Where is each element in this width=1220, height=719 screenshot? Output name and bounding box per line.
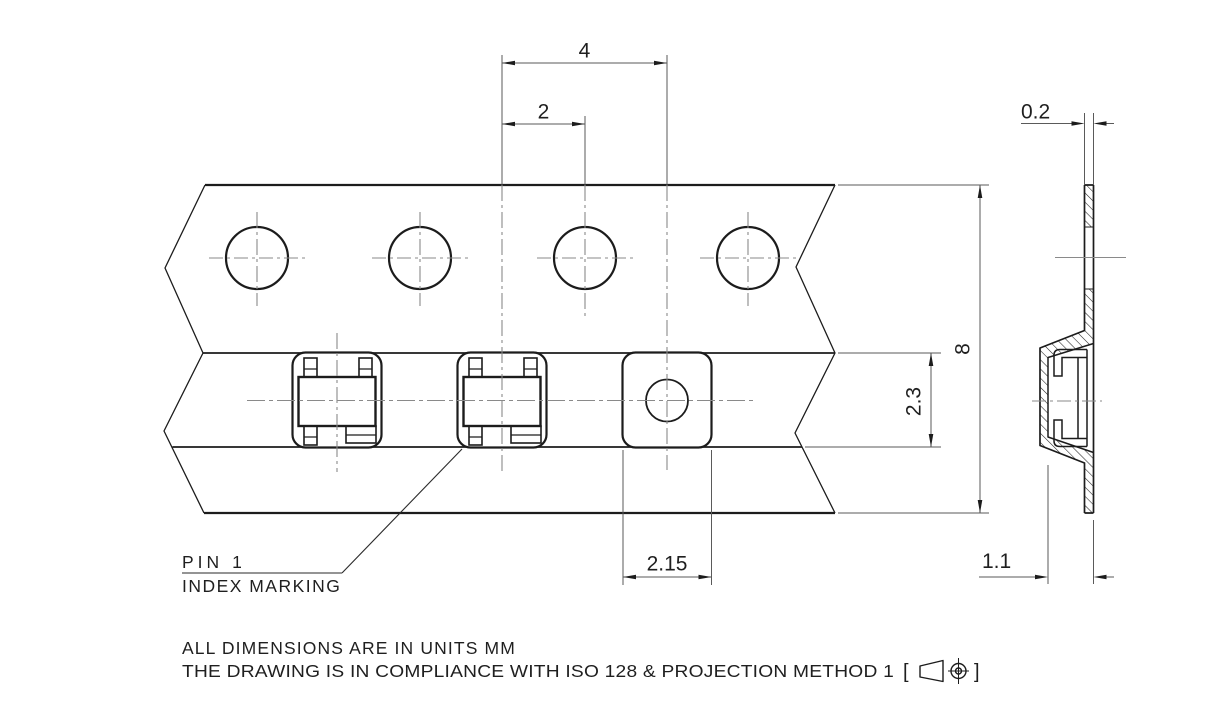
component-1-pin-top-left <box>304 358 317 377</box>
first-angle-projection-symbol-icon <box>920 658 969 684</box>
arrowhead-right <box>699 575 712 580</box>
component-1-pin-top-right <box>359 358 372 377</box>
arrowhead-top <box>978 185 983 198</box>
dimension-pocket-width: 2.15 <box>623 450 712 585</box>
arrowhead-bottom <box>929 434 934 447</box>
arrowhead-left <box>502 122 515 127</box>
dim-value-pocket-width: 2.15 <box>647 553 688 576</box>
arrowhead-left <box>1035 575 1048 580</box>
arrowhead-left <box>623 575 636 580</box>
component-2-pin-top-left <box>469 358 482 377</box>
arrowhead-bottom <box>978 500 983 513</box>
tape-side-section-view: 0.2 1.1 <box>979 101 1126 585</box>
compliance-note: THE DRAWING IS IN COMPLIANCE WITH ISO 12… <box>182 661 894 681</box>
component-1-pin-bottom-left <box>304 426 317 445</box>
bracket-open: [ <box>903 661 909 683</box>
drawing-notes: ALL DIMENSIONS ARE IN UNITS MM THE DRAWI… <box>182 638 980 684</box>
arrowhead-left <box>1072 121 1085 126</box>
left-break-line <box>164 185 205 513</box>
dimension-pocket-pitch: 4 <box>502 40 667 66</box>
dim-value-pocket-depth: 1.1 <box>982 550 1011 573</box>
projection-crosshair <box>948 658 969 684</box>
component-section-profile <box>1054 350 1087 447</box>
arrowhead-right <box>1094 575 1107 580</box>
arrowhead-right <box>654 61 667 66</box>
drawing-canvas: 4 2 2.15 8 <box>0 0 1220 719</box>
component-2-pin-bottom-left <box>469 426 482 445</box>
component-2-pin-top-right <box>524 358 537 377</box>
dimension-tape-width: 8 <box>838 185 989 513</box>
projection-cone-icon <box>920 661 943 682</box>
dim-value-tape-width: 8 <box>952 343 975 355</box>
units-note: ALL DIMENSIONS ARE IN UNITS MM <box>182 638 515 658</box>
extension-lines <box>1085 113 1094 185</box>
bracket-close: ] <box>974 661 980 683</box>
arrowhead-right <box>572 122 585 127</box>
technical-drawing-page: 4 2 2.15 8 <box>0 0 1220 719</box>
tape-top-view: 4 2 2.15 8 <box>164 40 989 597</box>
arrowhead-right <box>1094 121 1107 126</box>
right-break-line <box>795 185 835 513</box>
dimension-pocket-to-sprocket: 2 <box>502 101 585 127</box>
dim-value-tape-thickness: 0.2 <box>1021 101 1050 124</box>
arrowhead-top <box>929 353 934 366</box>
arrowhead-left <box>502 61 515 66</box>
component-body-profile <box>1078 350 1087 447</box>
dim-value-pocket-to-sprocket: 2 <box>538 101 550 124</box>
dim-value-pocket-pitch: 4 <box>579 40 591 63</box>
pin1-annotation: PIN 1 INDEX MARKING <box>182 449 462 596</box>
dimension-pocket-length: 2.3 <box>805 353 941 447</box>
dimension-tape-thickness: 0.2 <box>1021 101 1114 186</box>
pin1-leader-line <box>342 449 462 573</box>
pin1-label: PIN 1 <box>182 552 242 572</box>
dim-value-pocket-length: 2.3 <box>903 387 926 416</box>
index-marking-label: INDEX MARKING <box>182 576 340 596</box>
